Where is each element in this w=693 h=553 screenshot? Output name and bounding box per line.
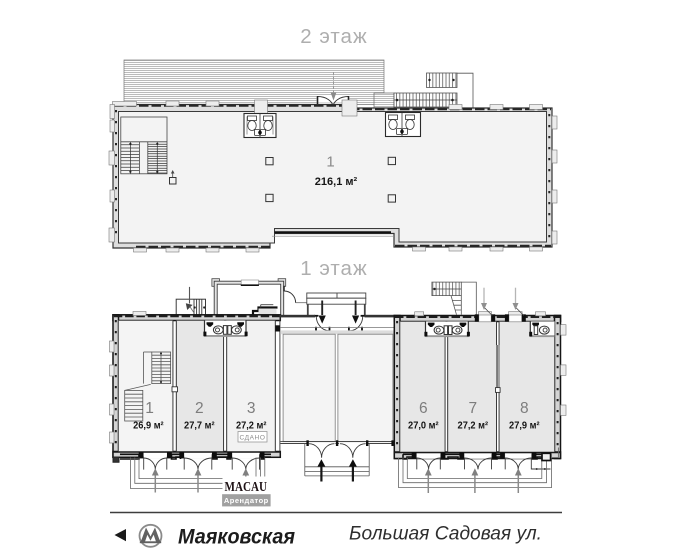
svg-text:7: 7 — [468, 400, 477, 417]
svg-text:3: 3 — [247, 400, 256, 417]
svg-text:27,2 м²: 27,2 м² — [236, 420, 267, 432]
svg-text:27,7 м²: 27,7 м² — [184, 420, 215, 432]
svg-text:27,2 м²: 27,2 м² — [458, 420, 489, 432]
svg-text:Большая Садовая ул.: Большая Садовая ул. — [349, 523, 542, 545]
svg-text:27,0 м²: 27,0 м² — [408, 420, 439, 432]
svg-text:6: 6 — [419, 400, 428, 417]
svg-text:26,9 м²: 26,9 м² — [133, 420, 164, 432]
svg-text:1: 1 — [326, 154, 334, 171]
svg-text:Маяковская: Маяковская — [178, 526, 295, 549]
svg-text:MACAU: MACAU — [225, 480, 268, 495]
svg-text:216,1 м²: 216,1 м² — [315, 176, 358, 188]
svg-text:8: 8 — [520, 400, 529, 417]
svg-text:1: 1 — [145, 400, 154, 417]
svg-text:Арендатор: Арендатор — [224, 496, 269, 505]
svg-text:27,9 м²: 27,9 м² — [509, 420, 540, 432]
svg-text:2 этаж: 2 этаж — [300, 25, 367, 48]
svg-text:СДАНО: СДАНО — [239, 434, 265, 441]
svg-text:1 этаж: 1 этаж — [300, 257, 367, 280]
svg-text:2: 2 — [195, 400, 204, 417]
